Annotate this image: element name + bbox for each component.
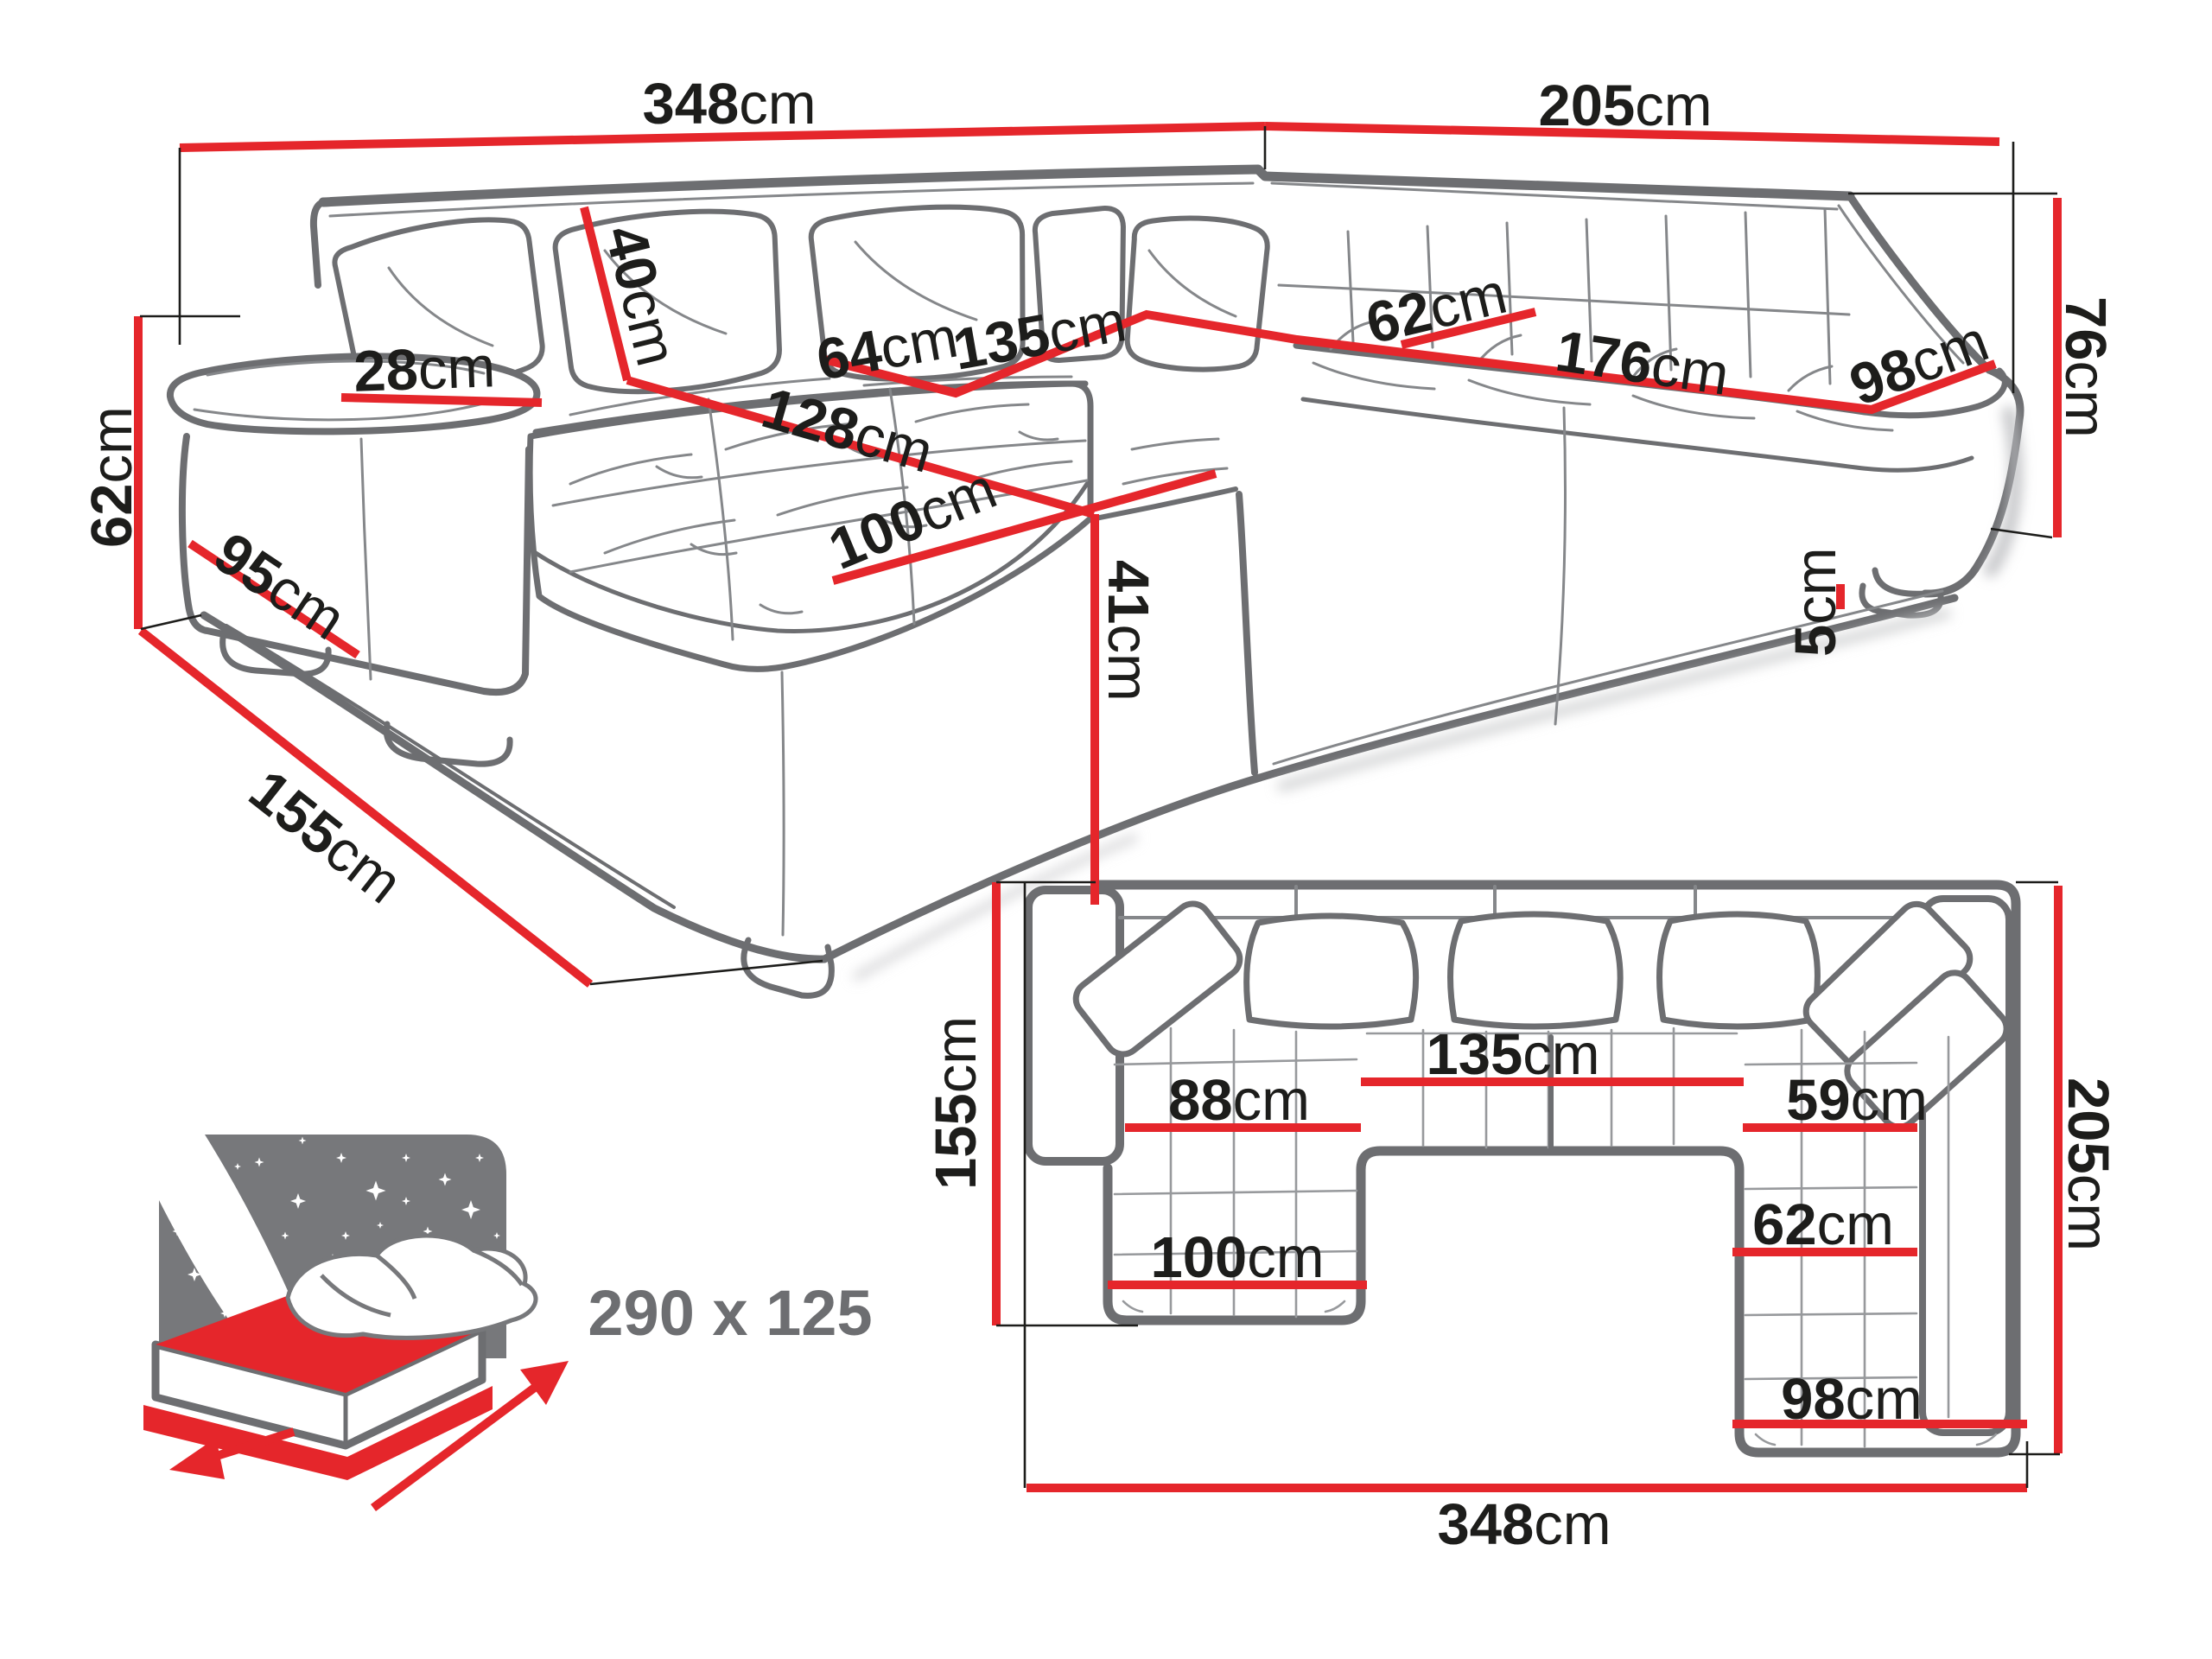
svg-text:5cm: 5cm: [1783, 547, 1848, 657]
svg-text:28cm: 28cm: [353, 334, 496, 404]
svg-text:98cm: 98cm: [1781, 1367, 1923, 1432]
svg-text:205cm: 205cm: [2056, 1077, 2120, 1251]
svg-text:62cm: 62cm: [1752, 1192, 1894, 1257]
svg-text:62cm: 62cm: [79, 406, 144, 548]
svg-text:59cm: 59cm: [1786, 1068, 1928, 1133]
svg-text:135cm: 135cm: [1426, 1022, 1599, 1087]
svg-text:348cm: 348cm: [642, 72, 816, 137]
svg-text:100cm: 100cm: [1150, 1225, 1324, 1290]
svg-text:41cm: 41cm: [1096, 560, 1160, 702]
svg-text:348cm: 348cm: [1437, 1492, 1611, 1557]
svg-text:76cm: 76cm: [2053, 296, 2118, 438]
svg-text:290 x 125: 290 x 125: [588, 1277, 872, 1349]
svg-text:155cm: 155cm: [924, 1016, 988, 1190]
svg-text:205cm: 205cm: [1538, 73, 1712, 138]
svg-text:88cm: 88cm: [1168, 1068, 1310, 1133]
